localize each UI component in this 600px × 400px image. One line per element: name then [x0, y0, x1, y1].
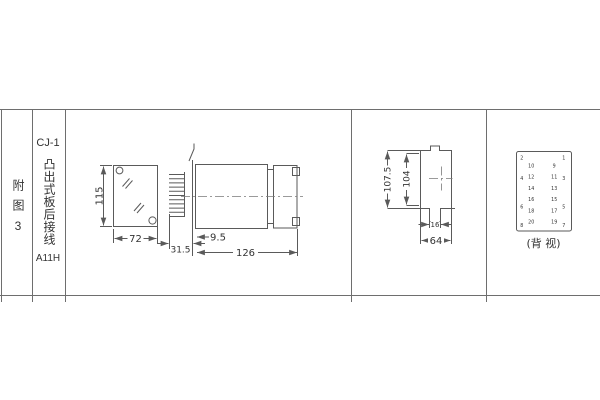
terminal-1: 1	[562, 156, 565, 162]
terminal-10: 10	[528, 164, 534, 170]
terminal-16: 16	[528, 197, 534, 203]
mounting-type-label: 凸出式板后接线	[41, 158, 58, 246]
terminal-14: 14	[528, 186, 534, 192]
svg-text:7: 7	[562, 223, 565, 229]
svg-text:8: 8	[520, 223, 523, 229]
svg-text:10: 10	[528, 164, 534, 170]
pin-length-dim-label: 31.5	[170, 246, 190, 256]
svg-text:3: 3	[562, 176, 565, 182]
side-view-drawing: 9.5 31.5 126	[157, 144, 303, 260]
terminal-pins	[169, 172, 185, 217]
figure-number-label: 附图3	[10, 179, 27, 241]
svg-text:18: 18	[528, 208, 534, 214]
svg-text:20: 20	[528, 220, 534, 226]
svg-text:13: 13	[551, 186, 557, 192]
profile-outline	[388, 146, 456, 222]
terminal-17: 17	[551, 208, 557, 214]
table-grid-lines	[0, 110, 600, 303]
svg-text:5: 5	[562, 205, 565, 211]
technical-drawing-canvas: 115 72 9.5 31.5	[0, 0, 600, 400]
svg-text:19: 19	[551, 220, 557, 226]
mounting-hole-top-left	[116, 167, 123, 174]
profile-view-drawing: 107.5 104 16 64	[384, 146, 456, 247]
model-label: CJ-1	[33, 137, 63, 149]
svg-text:12: 12	[528, 175, 534, 181]
width-dim-label: 72	[129, 234, 142, 245]
stud-width-dim-label: 16	[431, 221, 440, 229]
svg-text:17: 17	[551, 208, 557, 214]
svg-text:4: 4	[520, 176, 523, 182]
terminal-2: 2	[520, 156, 523, 162]
terminal-9: 9	[553, 164, 556, 170]
svg-text:15: 15	[551, 197, 557, 203]
overall-height-dim-label: 107.5	[384, 167, 394, 193]
terminal-13: 13	[551, 186, 557, 192]
svg-text:1: 1	[562, 156, 565, 162]
terminal-11: 11	[551, 175, 557, 181]
terminal-4: 4	[520, 176, 523, 182]
height-dim-label: 115	[95, 186, 106, 205]
svg-text:6: 6	[520, 205, 523, 211]
terminal-8: 8	[520, 223, 523, 229]
terminal-7: 7	[562, 223, 565, 229]
svg-text:16: 16	[528, 197, 534, 203]
terminal-12: 12	[528, 175, 534, 181]
body-height-dim-label: 104	[403, 170, 413, 187]
profile-center-cross	[429, 167, 453, 191]
scheme-code-label: A11H	[33, 253, 63, 264]
svg-text:2: 2	[520, 156, 523, 162]
terminal-block-outline	[517, 152, 572, 232]
front-offset-dim-label: 9.5	[210, 233, 226, 244]
front-view-drawing: 115 72	[95, 166, 158, 246]
terminal-5: 5	[562, 205, 565, 211]
panel-break-line	[189, 144, 194, 257]
rear-view-drawing: 2 1 10 9 4 12 11 3 14 13 16 15 6 18 17 5…	[517, 152, 572, 251]
profile-width-dim-label: 64	[430, 236, 443, 247]
terminal-15: 15	[551, 197, 557, 203]
terminal-18: 18	[528, 208, 534, 214]
terminal-6: 6	[520, 205, 523, 211]
terminal-19: 19	[551, 220, 557, 226]
drawing-sheet: 115 72 9.5 31.5	[0, 0, 600, 400]
svg-text:11: 11	[551, 175, 557, 181]
svg-text:9: 9	[553, 164, 556, 170]
terminal-3: 3	[562, 176, 565, 182]
terminal-20: 20	[528, 220, 534, 226]
cover-tab-top	[293, 168, 300, 176]
length-dim-label: 126	[236, 248, 255, 259]
cover-tab-bottom	[293, 218, 300, 226]
svg-text:14: 14	[528, 186, 534, 192]
mounting-hole-bottom-right	[149, 217, 156, 224]
surface-hatch-marks	[123, 179, 145, 214]
rear-view-caption: (背 视)	[526, 236, 560, 250]
